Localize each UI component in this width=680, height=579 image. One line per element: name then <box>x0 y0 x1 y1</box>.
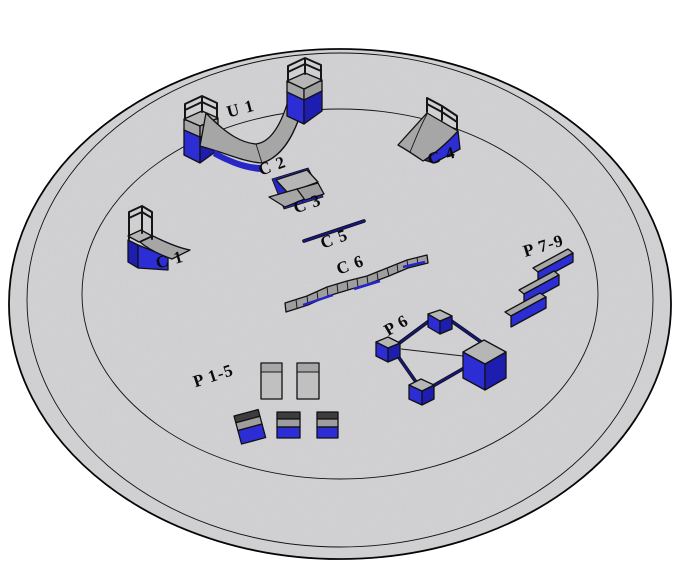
p1-top-band <box>262 364 281 372</box>
p6-bottom-cube <box>409 379 434 405</box>
p5-cube <box>317 412 338 438</box>
p4-cube <box>277 412 300 438</box>
p2-top-band <box>298 364 318 372</box>
pad-speckle-texture <box>9 49 671 559</box>
skatepark-layout-render: { "scene": { "description": "Isometric 3… <box>0 0 680 579</box>
circular-pad <box>9 49 671 559</box>
p2-tall-box <box>297 363 319 399</box>
p4-blue-front <box>277 427 300 438</box>
p5-gray-band <box>317 419 338 427</box>
p4-gray-band <box>277 419 300 427</box>
p6-left-cube <box>376 337 400 362</box>
p5-blue-front <box>317 427 338 438</box>
p4-dark-top <box>277 412 300 419</box>
p1-tall-box <box>261 363 282 399</box>
p5-dark-top <box>317 412 338 419</box>
scene-canvas: U 1 C 4 C 1 C 2 C 3 C 5 C 6 <box>0 0 680 579</box>
